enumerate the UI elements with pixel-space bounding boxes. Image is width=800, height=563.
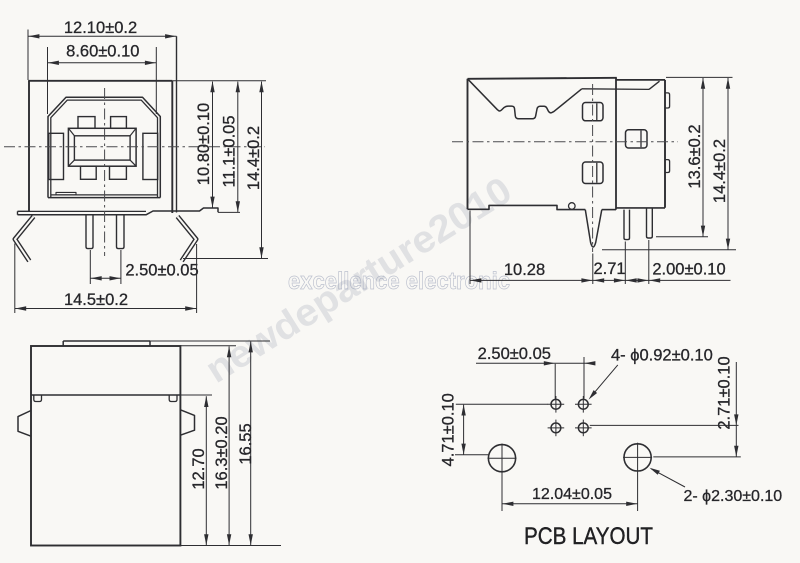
svg-text:8.60±0.10: 8.60±0.10 — [66, 43, 139, 61]
svg-text:16.55: 16.55 — [237, 423, 255, 464]
svg-text:2.71±0.10: 2.71±0.10 — [716, 356, 734, 429]
svg-text:10.80±0.10: 10.80±0.10 — [195, 103, 213, 185]
svg-text:14.5±0.2: 14.5±0.2 — [64, 291, 128, 309]
svg-text:13.6±0.2: 13.6±0.2 — [686, 124, 704, 188]
svg-text:2.50±0.05: 2.50±0.05 — [125, 261, 198, 279]
svg-text:2.00±0.10: 2.00±0.10 — [652, 260, 725, 278]
svg-text:14.4±0.2: 14.4±0.2 — [245, 126, 263, 190]
svg-text:2- ϕ2.30±0.10: 2- ϕ2.30±0.10 — [684, 488, 783, 505]
svg-text:PCB LAYOUT: PCB LAYOUT — [524, 523, 653, 550]
svg-text:2.50±0.05: 2.50±0.05 — [478, 345, 551, 363]
svg-text:12.70: 12.70 — [190, 448, 208, 489]
svg-text:10.28: 10.28 — [504, 261, 545, 279]
svg-text:4.71±0.10: 4.71±0.10 — [440, 393, 458, 466]
svg-text:14.4±0.2: 14.4±0.2 — [711, 139, 729, 203]
svg-text:16.3±0.20: 16.3±0.20 — [213, 416, 231, 489]
svg-text:2.71: 2.71 — [593, 260, 625, 278]
svg-text:12.10±0.2: 12.10±0.2 — [64, 19, 137, 37]
svg-text:12.04±0.05: 12.04±0.05 — [532, 486, 612, 503]
svg-text:11.1±0.05: 11.1±0.05 — [221, 115, 239, 187]
svg-text:4- ϕ0.92±0.10: 4- ϕ0.92±0.10 — [611, 346, 713, 364]
